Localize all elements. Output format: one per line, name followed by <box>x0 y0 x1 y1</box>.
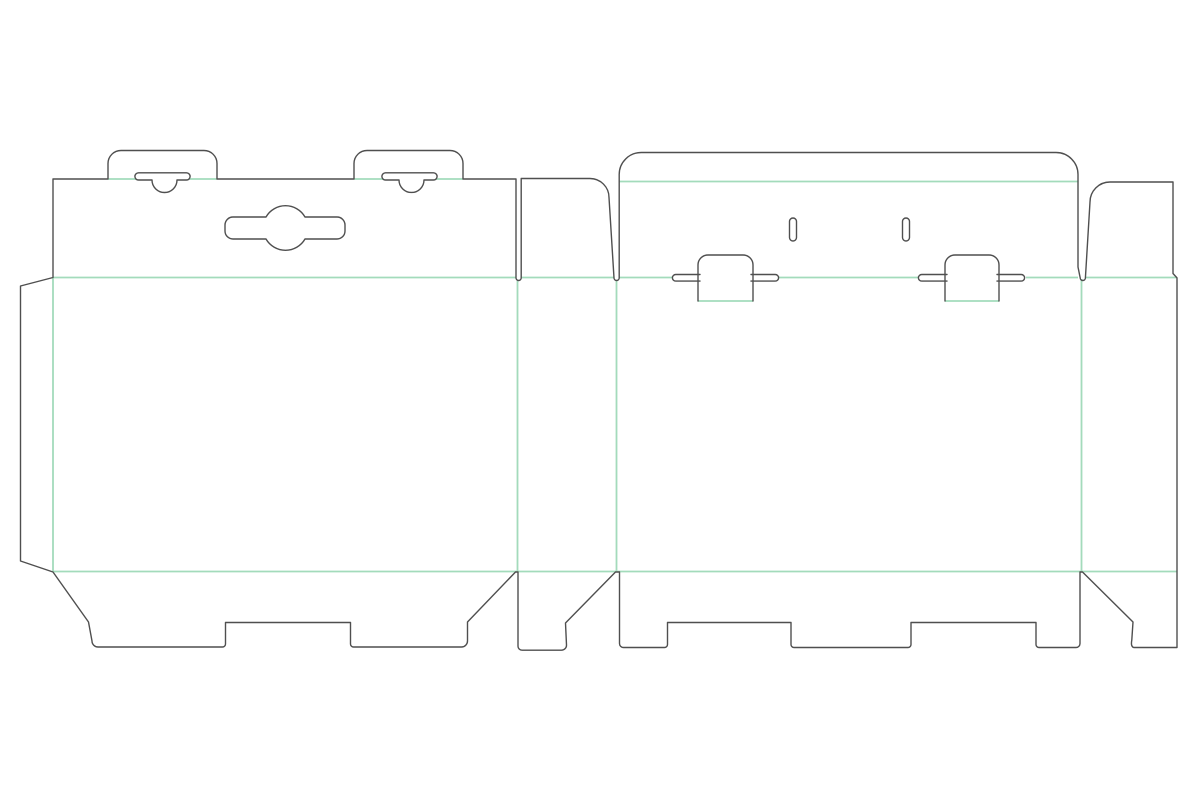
cut-lock-tab-left-wing-right <box>751 275 779 282</box>
cut-lock-tab-right-wing-right <box>997 275 1025 282</box>
cut-lid-vent-slit-left <box>790 218 797 241</box>
cut-blank-outline <box>21 151 1178 651</box>
dieline-drawing <box>0 0 1200 800</box>
cut-lock-tab-right <box>945 255 999 301</box>
cut-hang-tab-slit-left <box>135 173 190 193</box>
dieline-canvas <box>0 0 1200 800</box>
cut-euro-hanger-slot <box>225 206 345 251</box>
cut-lock-tab-left <box>698 255 753 301</box>
cut-lock-tab-left-wing-left <box>672 275 700 282</box>
cut-lid-vent-slit-right <box>903 218 910 241</box>
cut-hang-tab-slit-right <box>382 173 437 193</box>
cut-lock-tab-right-wing-left <box>918 275 947 282</box>
